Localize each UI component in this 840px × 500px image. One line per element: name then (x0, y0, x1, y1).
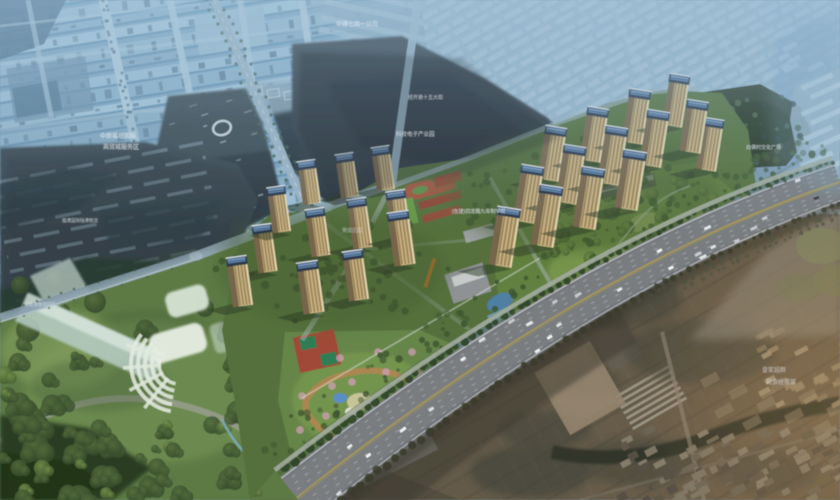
svg-text:白佛村文化广场: 白佛村文化广场 (746, 144, 781, 151)
svg-text:(在建)四龙路九年制学校: (在建)四龙路九年制学校 (452, 208, 505, 215)
svg-text:科技电子产业园: 科技电子产业园 (396, 130, 435, 138)
svg-text:中原福塔国际: 中原福塔国际 (100, 132, 136, 140)
svg-text:公路港物流园区: 公路港物流园区 (24, 301, 56, 308)
svg-text:临港国际陆港物流: 临港国际陆港物流 (62, 217, 98, 224)
svg-text:荣成庄园: 荣成庄园 (342, 227, 362, 234)
svg-text:商贸城服务区: 商贸城服务区 (103, 143, 139, 151)
svg-text:经开第十五大街: 经开第十五大街 (408, 94, 443, 101)
svg-text:中建七局一公司: 中建七局一公司 (336, 20, 378, 28)
svg-text:副食经营部: 副食经营部 (766, 378, 796, 386)
svg-text:皇家超群: 皇家超群 (762, 366, 786, 374)
